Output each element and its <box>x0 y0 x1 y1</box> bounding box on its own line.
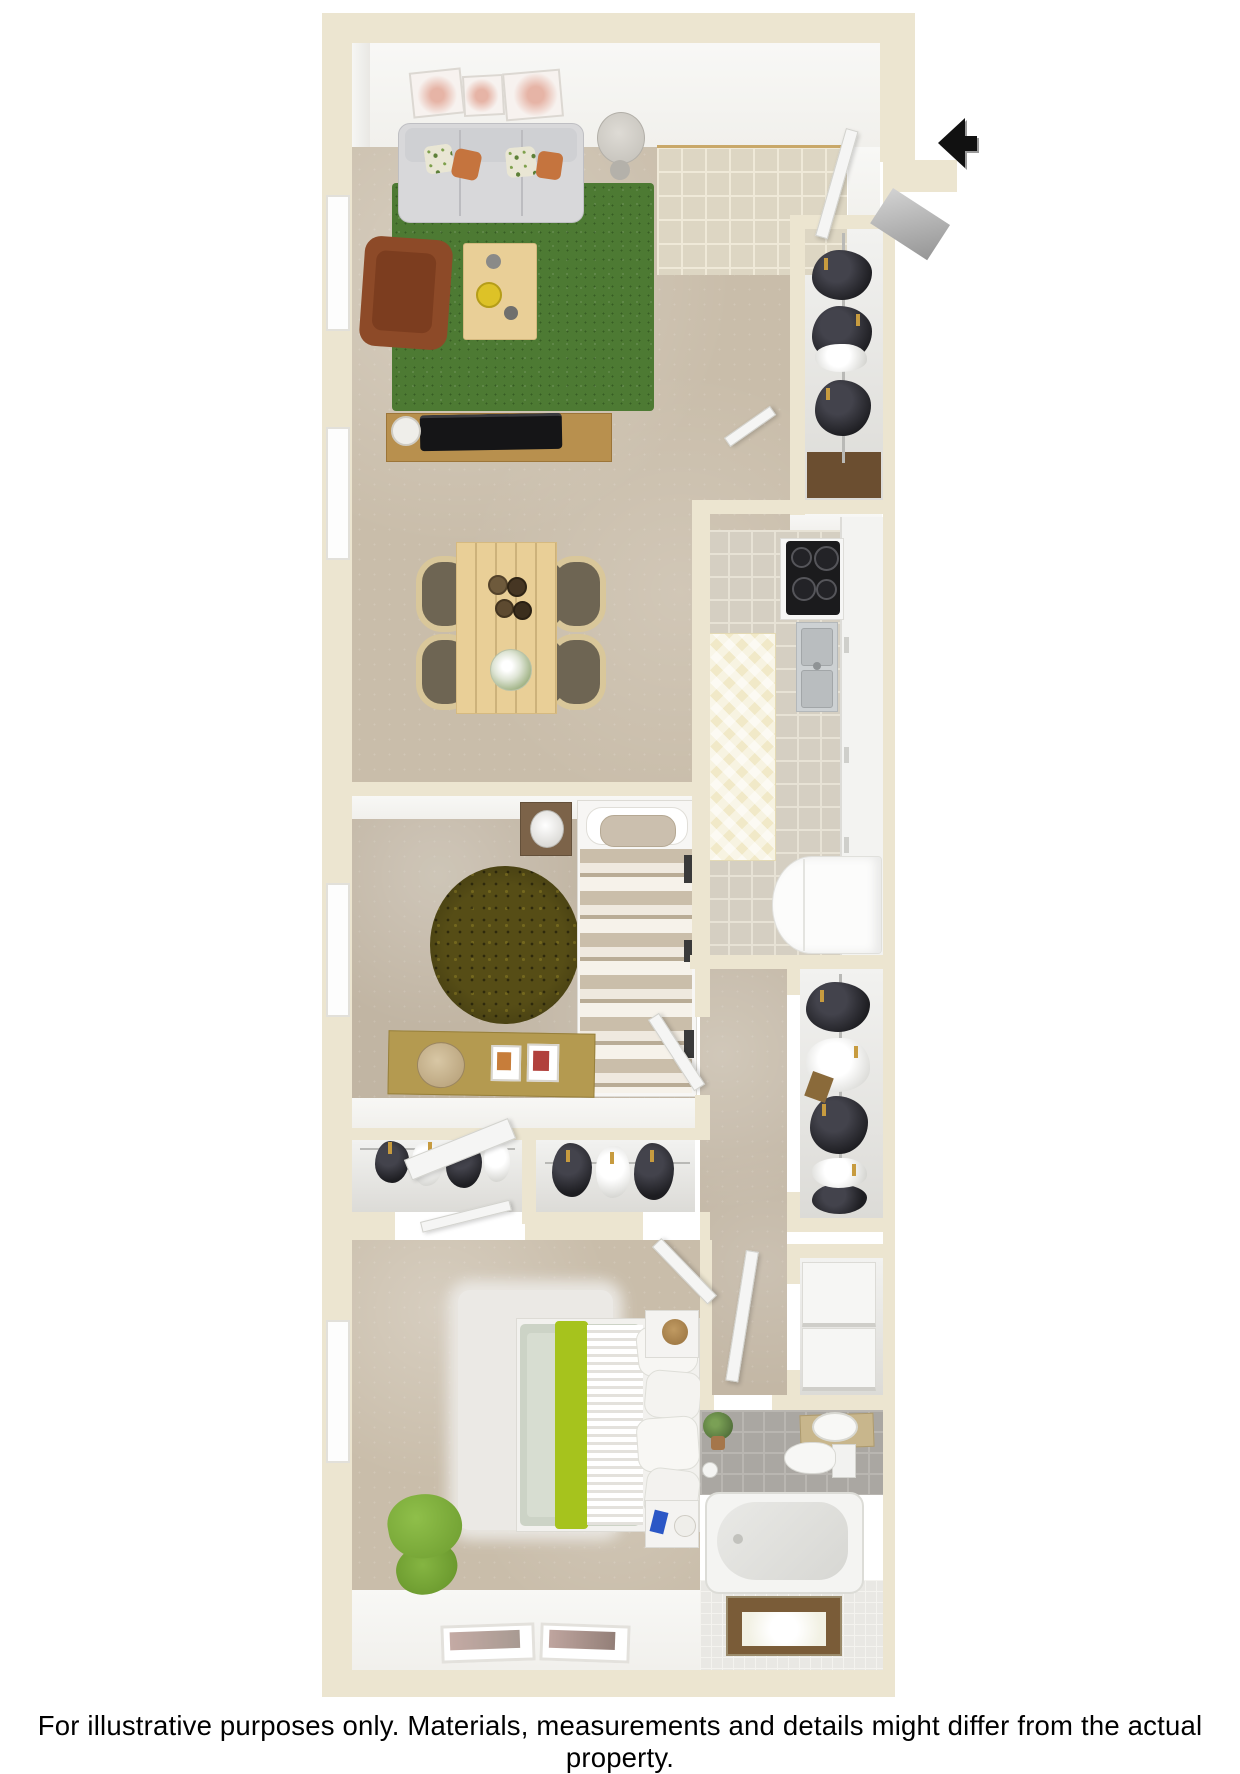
burner <box>814 546 839 571</box>
wall-right-upper <box>880 43 915 162</box>
kitchen-runner-rug <box>708 633 776 861</box>
cup <box>507 577 527 597</box>
floor-lamp-base <box>610 160 630 180</box>
bedroom1-wall-right-upper <box>695 782 710 1017</box>
bedroom2-window <box>326 1320 350 1463</box>
photo-frame <box>491 1045 522 1082</box>
cup <box>504 306 518 320</box>
walkin-wall-bottom <box>787 1218 895 1232</box>
bathroom-plant <box>703 1412 733 1450</box>
linen-shelf <box>802 1262 876 1327</box>
hanger <box>610 1152 614 1164</box>
hanger <box>566 1150 570 1162</box>
wall-right-main <box>883 162 895 1697</box>
sink-basin <box>801 628 833 666</box>
faucet <box>813 662 821 670</box>
photo-frame <box>527 1044 560 1083</box>
dining-table <box>456 542 557 714</box>
disclaimer-text: For illustrative purposes only. Material… <box>0 1710 1240 1774</box>
floor-plan: For illustrative purposes only. Material… <box>0 0 1240 1754</box>
bed-lime-throw <box>555 1321 588 1529</box>
entry-threshold <box>657 145 847 148</box>
floor-lamp <box>597 112 645 164</box>
leaf-pillow <box>423 143 455 175</box>
orange-pillow <box>535 150 564 180</box>
bedroom2-wall-right <box>700 1240 712 1400</box>
plant-pot <box>711 1436 725 1450</box>
closet-row-bottom-wall <box>352 1212 395 1240</box>
hanger <box>824 258 828 270</box>
vanity-sink <box>812 1412 858 1442</box>
hat-box <box>417 1042 466 1089</box>
cooktop <box>786 541 840 615</box>
hall-closet-wall <box>787 967 800 995</box>
hall-closet-wall <box>787 1192 800 1220</box>
cup <box>486 254 501 269</box>
entry-tile-floor <box>657 147 847 275</box>
bed-pillow <box>635 1415 701 1473</box>
burner <box>792 577 816 601</box>
wall-bottom <box>322 1670 895 1697</box>
bathroom-wall-top <box>772 1395 883 1410</box>
cup <box>488 575 508 595</box>
bedroom1-round-rug <box>430 866 580 1024</box>
bedroom1-lamp <box>530 810 564 848</box>
hanger <box>856 314 860 326</box>
living-room-window <box>326 195 350 331</box>
hanger <box>852 1164 856 1176</box>
wall-art-frame <box>440 1622 535 1663</box>
hanging-clothes <box>812 1158 867 1188</box>
kitchen-wall-top <box>697 500 883 514</box>
hanger <box>820 990 824 1002</box>
hanger <box>826 388 830 400</box>
cup <box>513 601 532 620</box>
phone <box>650 1510 669 1535</box>
hanger <box>822 1104 826 1116</box>
bedroom1-dresser <box>387 1030 595 1098</box>
wall-art-frame <box>409 67 466 118</box>
burner <box>816 579 837 600</box>
shower-floor-light <box>742 1612 826 1646</box>
bathtub-drain <box>733 1534 743 1544</box>
hanging-clothes <box>815 344 867 372</box>
shower-floor-inset <box>726 1596 842 1656</box>
toilet-paper-holder <box>702 1462 718 1478</box>
bedroom2-nightstand <box>645 1310 699 1358</box>
bedroom1-wall-top <box>352 782 710 796</box>
linen-wall-left <box>787 1258 800 1284</box>
closet-row-bottom-wall <box>700 1212 710 1240</box>
entry-arrow-icon <box>938 118 965 168</box>
bedroom1-bottom-wall-face <box>352 1096 695 1128</box>
leaf-pillow <box>505 146 538 179</box>
bed-bolster <box>600 815 676 847</box>
yellow-bowl <box>476 282 502 308</box>
nightstand-basket <box>662 1319 688 1345</box>
burner <box>791 547 812 568</box>
wall-top <box>322 13 915 43</box>
nightstand-cup <box>674 1515 696 1537</box>
cabinet-handle <box>844 837 849 853</box>
fridge-divider <box>803 859 805 951</box>
vase <box>391 416 421 446</box>
bed-pillow <box>643 1369 703 1422</box>
bedroom2-nightstand <box>645 1500 699 1548</box>
hanger <box>650 1150 654 1162</box>
entry-arrow-shaft <box>964 136 977 151</box>
coffee-table <box>463 243 537 340</box>
television <box>420 413 563 451</box>
sink-basin <box>801 670 833 708</box>
toilet <box>784 1442 836 1474</box>
refrigerator <box>772 856 882 954</box>
armchair-seat <box>371 250 436 334</box>
dining-window <box>326 427 350 560</box>
wall-art-frame <box>539 1622 630 1663</box>
linen-wall-top <box>787 1244 895 1258</box>
bedroom1-window <box>326 883 350 1017</box>
bed-ribbed-blanket <box>587 1325 643 1525</box>
cabinet-handle <box>844 637 849 653</box>
bathtub <box>705 1492 864 1594</box>
linen-shelf <box>802 1328 876 1391</box>
closet-row-bottom-wall <box>525 1212 643 1240</box>
closet-divider-wall <box>522 1128 536 1224</box>
wall-art-frame <box>462 74 505 117</box>
wall-art-frame <box>502 69 564 122</box>
hanger <box>854 1046 858 1058</box>
kitchen-sink <box>796 622 838 712</box>
hanger <box>388 1142 392 1154</box>
cabinet-handle <box>844 747 849 763</box>
armchair <box>358 235 453 351</box>
entry-closet-wall-left <box>790 215 805 515</box>
cup <box>495 599 514 618</box>
flower-centerpiece <box>490 649 532 691</box>
